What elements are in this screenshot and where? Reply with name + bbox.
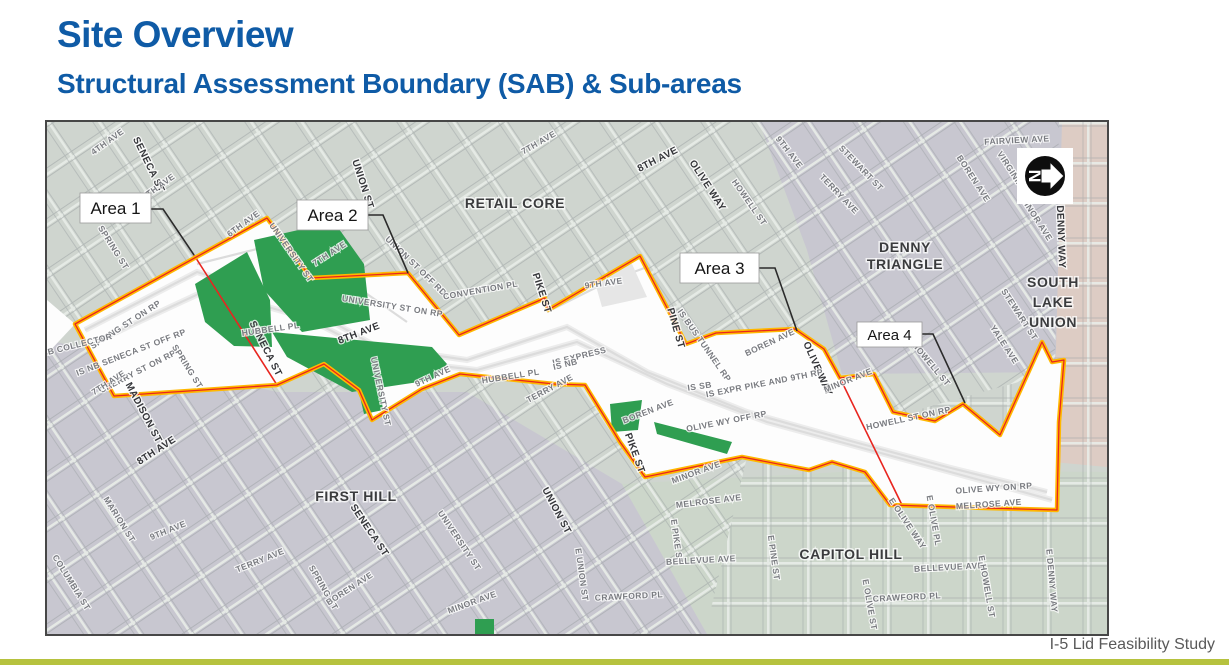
district-label: SOUTHLAKEUNION [1027,274,1079,330]
district-label: FIRST HILL [315,488,396,504]
north-arrow-icon: N [1017,148,1073,204]
area-3-label: Area 3 [694,259,744,278]
map-svg: 4TH AVESENECA ST5TH AVEUNION ST6TH AVEUN… [47,122,1107,634]
accent-bar [0,659,1229,665]
slide: Site Overview Structural Assessment Boun… [0,0,1229,671]
street-label: DENNY WAY [1054,205,1067,268]
page-title: Site Overview [57,14,293,56]
lid-green-area [475,619,494,634]
district-label: RETAIL CORE [465,195,565,211]
area-4-label: Area 4 [867,327,911,344]
area-1-label: Area 1 [90,199,140,218]
area-2-label: Area 2 [307,206,357,225]
page-subtitle: Structural Assessment Boundary (SAB) & S… [57,68,742,100]
district-label: CAPITOL HILL [799,546,902,562]
footer-text: I-5 Lid Feasibility Study [1050,636,1215,654]
site-map: 4TH AVESENECA ST5TH AVEUNION ST6TH AVEUN… [45,120,1109,636]
